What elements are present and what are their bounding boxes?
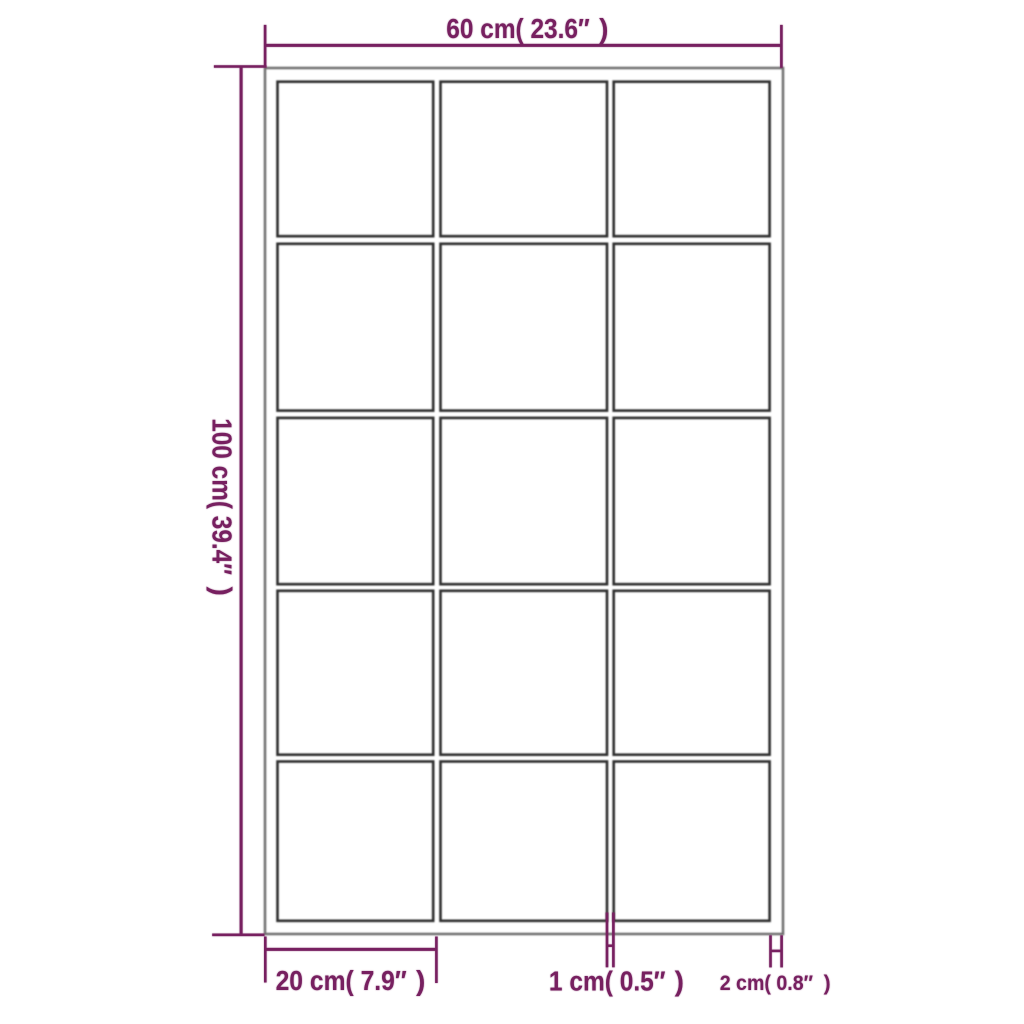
svg-text:100 cm( 39.4″: 100 cm( 39.4″ <box>207 418 238 575</box>
svg-text:1 cm( 0.5″: 1 cm( 0.5″ <box>549 966 666 997</box>
svg-text:): ) <box>824 972 831 995</box>
svg-text:2 cm( 0.8″: 2 cm( 0.8″ <box>720 972 813 995</box>
svg-text:60 cm( 23.6″: 60 cm( 23.6″ <box>446 13 589 44</box>
svg-text:): ) <box>207 586 238 595</box>
svg-text:): ) <box>599 13 608 44</box>
svg-text:): ) <box>416 965 425 996</box>
svg-text:20 cm( 7.9″: 20 cm( 7.9″ <box>276 965 407 996</box>
svg-text:): ) <box>675 966 684 997</box>
